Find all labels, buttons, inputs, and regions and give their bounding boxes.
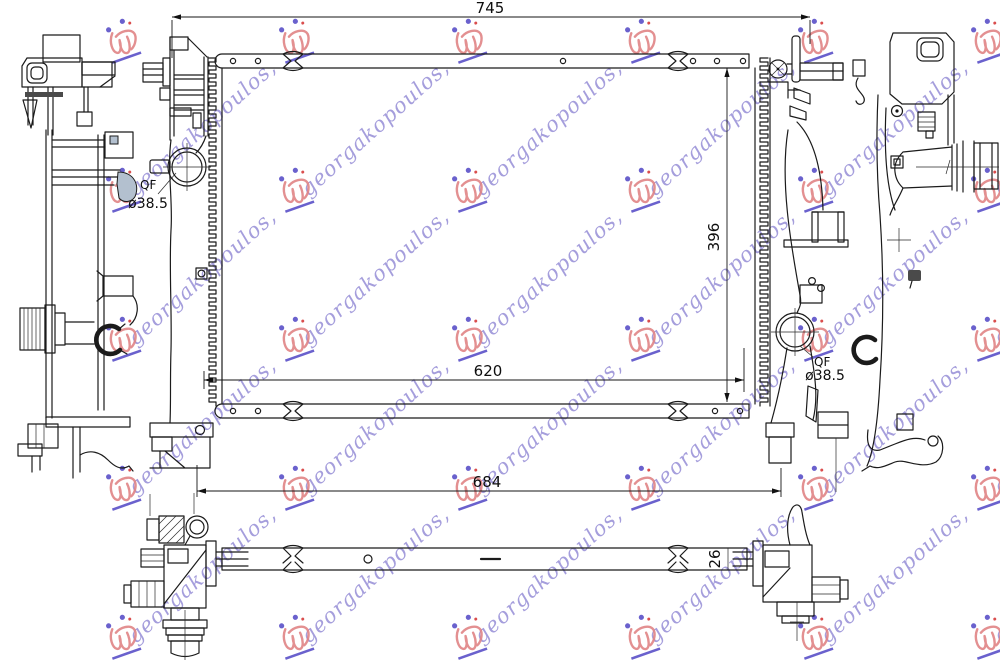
dim-height: 396 (705, 223, 723, 252)
dim-depth: 26 (706, 549, 724, 568)
far-left-bracket-view (18, 35, 137, 478)
left-side-view (143, 37, 213, 468)
bottom-view (124, 493, 848, 660)
far-right-bracket-view (853, 33, 999, 471)
left-port-code: QF (140, 178, 156, 192)
dim-core-width: 620 (474, 362, 503, 380)
dimension-annotations: 745 396 620 684 26 QF ø38.5 QF ø38.5 (128, 0, 845, 569)
right-port-code: QF (814, 355, 830, 369)
dim-top-width: 745 (476, 0, 505, 17)
right-port-diameter: ø38.5 (805, 368, 845, 384)
left-port-diameter: ø38.5 (128, 196, 168, 212)
radiator-line-drawing: 745 396 620 684 26 QF ø38.5 QF ø38.5 (0, 0, 1000, 660)
right-side-view (766, 36, 848, 492)
right-fin-band (760, 58, 768, 406)
dim-overall-width: 684 (473, 473, 502, 491)
left-fin-band (209, 58, 216, 406)
technical-drawing-page: georgakopoulos,georgakopoulos,georgakopo… (0, 0, 1000, 660)
